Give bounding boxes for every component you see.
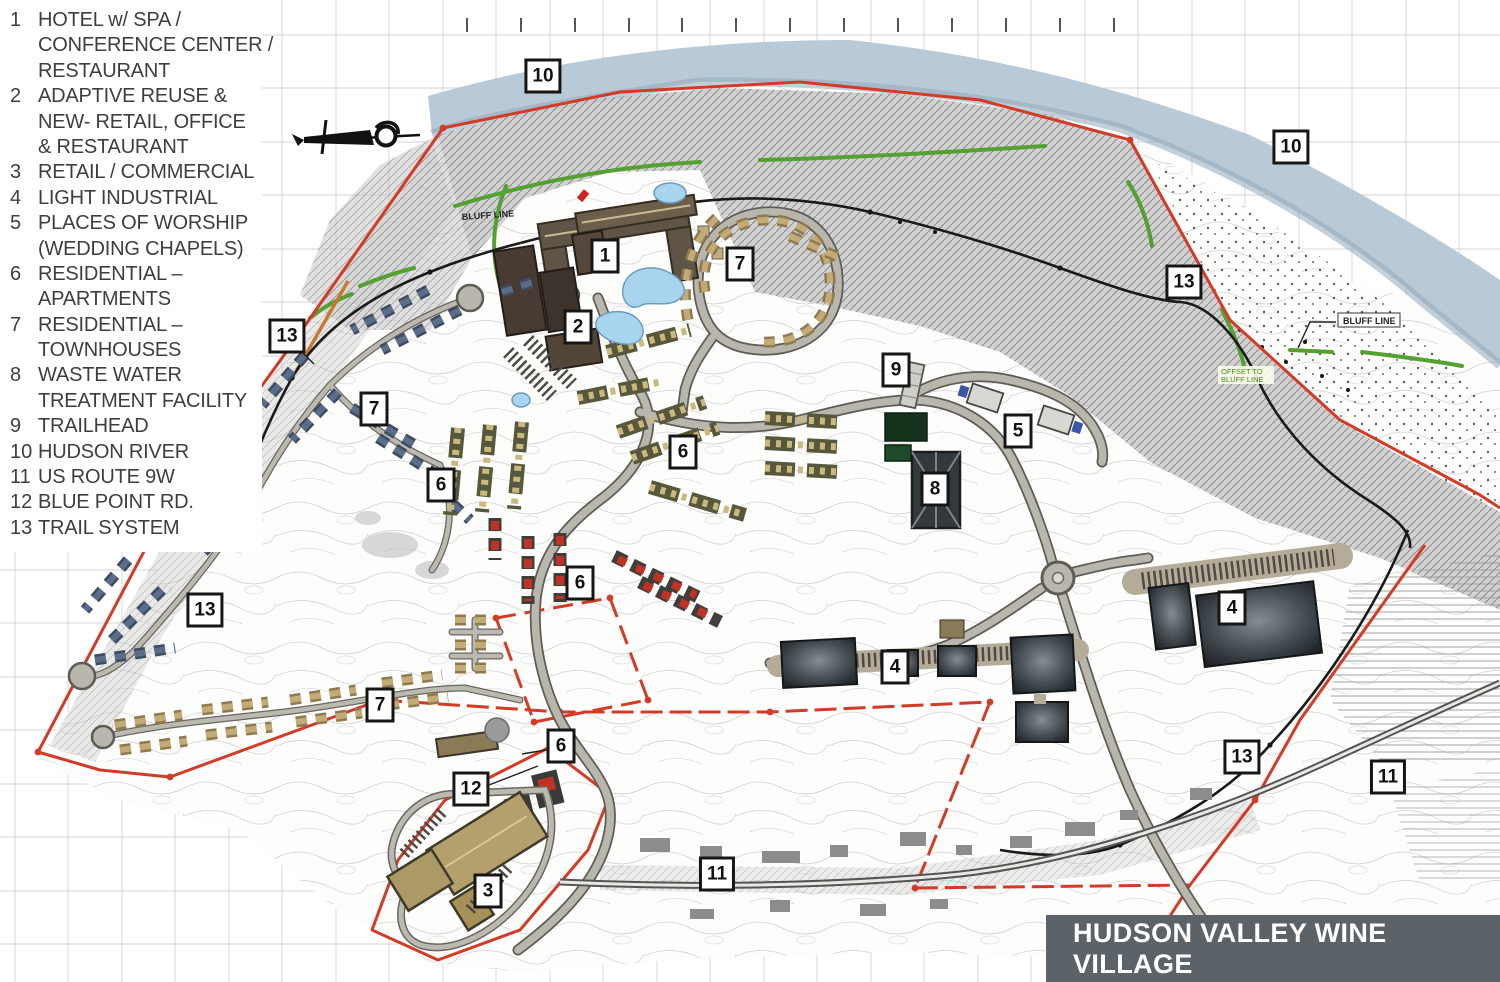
legend-item-number: 11 [10,465,38,490]
legend-item-10: 10HUDSON RIVER [10,440,278,465]
legend-item-number: 7 [10,313,38,338]
map-marker-6: 6 [547,729,576,764]
map-marker-6: 6 [566,566,595,601]
legend-item-6: 6RESIDENTIAL –APARTMENTS [10,262,278,313]
legend: 1HOTEL w/ SPA /CONFERENCE CENTER /RESTAU… [10,8,278,541]
legend-item-number: 6 [10,262,38,287]
legend-item-3: 3RETAIL / COMMERCIAL [10,160,278,185]
bluff-line-label-east: BLUFF LINE [1343,316,1396,326]
legend-item-label: RESIDENTIAL –APARTMENTS [38,262,182,313]
legend-item-8: 8WASTE WATERTREATMENT FACILITY [10,363,278,414]
site-plan-page: .rc{fill:none;stroke:#5f5c55;stroke-widt… [0,0,1500,982]
legend-item-9: 9TRAILHEAD [10,414,278,439]
legend-item-number: 3 [10,160,38,185]
legend-item-number: 2 [10,84,38,109]
legend-item-1: 1HOTEL w/ SPA /CONFERENCE CENTER /RESTAU… [10,8,278,84]
legend-item-7: 7RESIDENTIAL –TOWNHOUSES [10,313,278,364]
legend-item-5: 5PLACES OF WORSHIP(WEDDING CHAPELS) [10,211,278,262]
legend-item-number: 9 [10,414,38,439]
map-marker-11: 11 [699,857,735,892]
legend-item-number: 1 [10,8,38,33]
page-title: HUDSON VALLEY WINE VILLAGE [1073,918,1500,980]
legend-item-number: 12 [10,490,38,515]
legend-item-number: 5 [10,211,38,236]
legend-item-label: ADAPTIVE REUSE &NEW- RETAIL, OFFICE& RES… [38,84,246,160]
legend-item-label: LIGHT INDUSTRIAL [38,186,218,211]
map-marker-13: 13 [186,593,223,628]
legend-item-label: US ROUTE 9W [38,465,175,490]
survey-ticks [467,18,1114,32]
legend-item-label: PLACES OF WORSHIP(WEDDING CHAPELS) [38,211,248,262]
map-marker-13: 13 [1165,265,1202,300]
map-marker-9: 9 [882,353,911,388]
north-arrow-icon [292,120,420,154]
map-marker-13: 13 [1223,740,1260,775]
legend-item-label: RESIDENTIAL –TOWNHOUSES [38,313,182,364]
legend-item-2: 2ADAPTIVE REUSE &NEW- RETAIL, OFFICE& RE… [10,84,278,160]
legend-item-number: 4 [10,186,38,211]
legend-item-4: 4LIGHT INDUSTRIAL [10,186,278,211]
legend-item-label: TRAIL SYSTEM [38,516,179,541]
legend-item-label: BLUE POINT RD. [38,490,194,515]
legend-item-11: 11US ROUTE 9W [10,465,278,490]
map-marker-7: 7 [360,392,389,427]
legend-item-number: 8 [10,363,38,388]
legend-item-label: HOTEL w/ SPA /CONFERENCE CENTER /RESTAUR… [38,8,273,84]
legend-item-label: HUDSON RIVER [38,440,189,465]
legend-item-number: 13 [10,516,38,541]
map-marker-11: 11 [1370,760,1406,795]
legend-item-label: TRAILHEAD [38,414,148,439]
map-marker-2: 2 [564,310,593,345]
offset-note-line2: BLUFF LINE [1221,375,1264,384]
legend-item-label: WASTE WATERTREATMENT FACILITY [38,363,247,414]
map-marker-5: 5 [1004,414,1033,449]
map-marker-7: 7 [366,688,395,723]
map-marker-4: 4 [881,650,910,685]
map-marker-4: 4 [1218,591,1247,626]
legend-item-13: 13TRAIL SYSTEM [10,516,278,541]
map-marker-6: 6 [427,468,456,503]
legend-item-12: 12BLUE POINT RD. [10,490,278,515]
map-marker-12: 12 [452,772,489,807]
map-marker-8: 8 [921,472,950,507]
map-marker-10: 10 [1272,130,1309,165]
map-marker-7: 7 [726,247,755,282]
title-bar: HUDSON VALLEY WINE VILLAGE [1046,915,1500,982]
legend-item-label: RETAIL / COMMERCIAL [38,160,254,185]
map-marker-1: 1 [591,239,620,274]
legend-item-number: 10 [10,440,38,465]
map-marker-10: 10 [524,59,561,94]
map-marker-3: 3 [474,874,503,909]
map-marker-6: 6 [669,435,698,470]
